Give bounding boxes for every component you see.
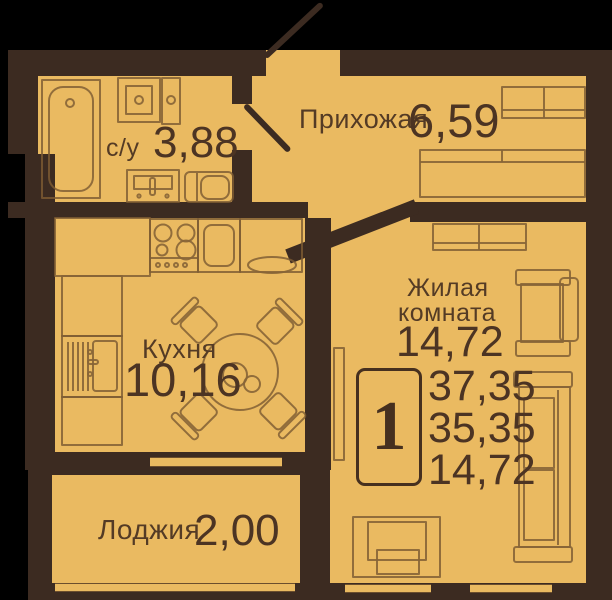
armchair xyxy=(353,517,440,577)
washbasin xyxy=(118,78,160,122)
toilet xyxy=(185,172,233,202)
furniture-layer xyxy=(0,0,612,600)
dining-chair xyxy=(256,389,306,439)
kitchen-corner-counter xyxy=(55,218,150,336)
hallway-cabinet xyxy=(502,87,585,118)
bathroom-area: 3,88 xyxy=(153,118,239,168)
loggia-label: Лоджия xyxy=(98,514,200,546)
living-area-summary: 14,72 xyxy=(428,446,536,495)
hallway-area: 6,59 xyxy=(408,93,499,148)
floor-plan: с/у 3,88 Прихожая 6,59 Кухня 10,16 Жилая… xyxy=(0,0,612,600)
bathtub xyxy=(42,80,100,198)
stove xyxy=(150,219,198,272)
kitchen-area: 10,16 xyxy=(124,352,242,407)
living-cabinet xyxy=(433,224,526,250)
bathroom-label: с/у xyxy=(106,134,139,163)
loggia-area: 2,00 xyxy=(194,506,280,556)
unit-number: 1 xyxy=(372,387,407,467)
kitchen-counter xyxy=(240,219,302,273)
wardrobe xyxy=(420,150,585,197)
kitchen-sink xyxy=(62,336,122,397)
vanity-unit xyxy=(127,170,179,202)
fridge xyxy=(198,219,240,272)
tv xyxy=(334,348,344,460)
unit-number-badge: 1 xyxy=(356,368,422,486)
living-area: 14,72 xyxy=(396,318,504,367)
lounge-chair xyxy=(516,270,578,356)
kitchen-cabinet xyxy=(62,397,122,445)
